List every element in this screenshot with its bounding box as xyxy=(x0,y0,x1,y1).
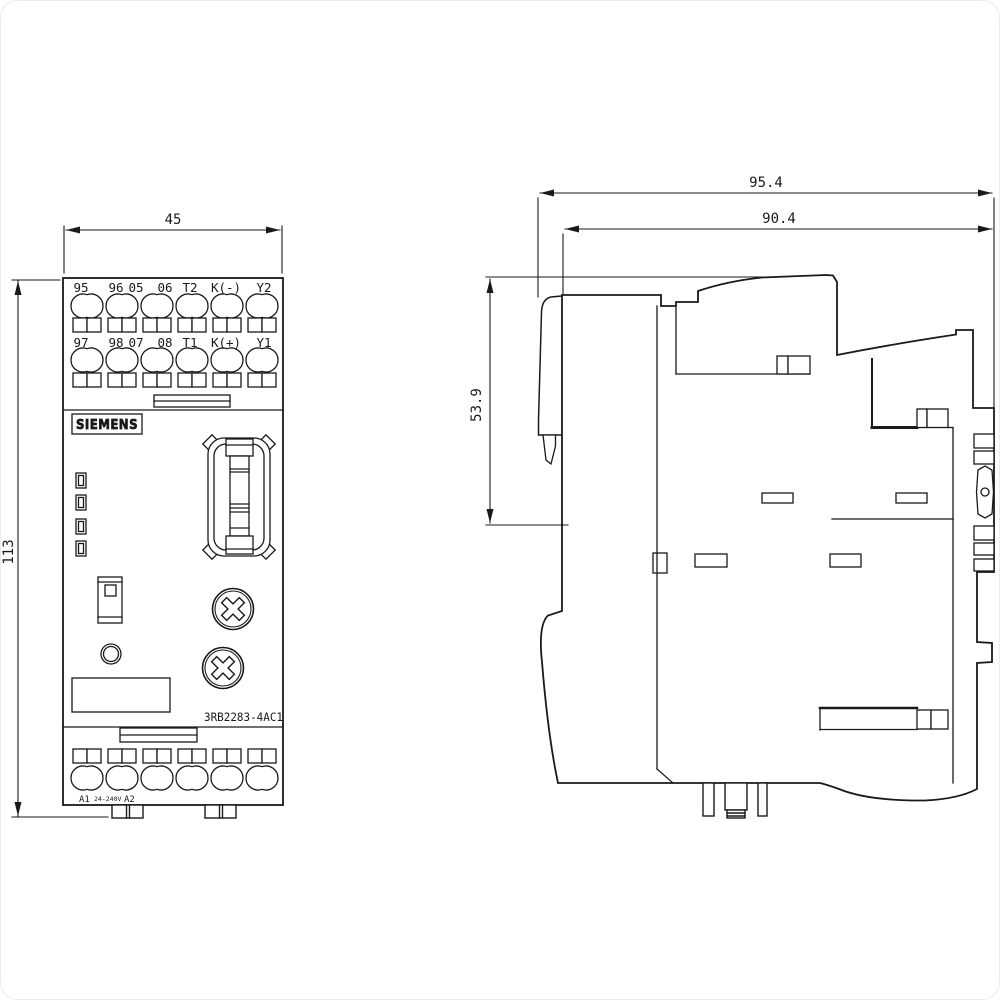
terminal-a1-label: A1 xyxy=(79,795,90,805)
terminal-label: 95 xyxy=(73,280,88,295)
terminal-label: Y1 xyxy=(256,335,271,350)
dimensional-drawing-page: 45 113 95.4 90.4 53.9 95 96 05 06 T2 K(-… xyxy=(0,0,1000,1000)
terminal-label: K(+) xyxy=(211,335,241,350)
reset-switch xyxy=(98,577,122,623)
terminal-label: T2 xyxy=(182,280,197,295)
mounting-feet xyxy=(112,805,236,818)
fixing-screw-upper xyxy=(213,589,254,630)
part-number: 3RB2283-4AC1 xyxy=(204,710,283,724)
terminal-label: Y2 xyxy=(256,280,271,295)
bus-connector xyxy=(203,435,275,559)
dimensional-drawing: 45 113 95.4 90.4 53.9 95 96 05 06 T2 K(-… xyxy=(0,0,1000,1000)
supply-voltage-label: 24-240V xyxy=(94,795,121,803)
front-view xyxy=(12,226,283,818)
fixing-screw-lower xyxy=(203,648,244,689)
terminal-label: 06 xyxy=(157,280,172,295)
terminal-label: 98 xyxy=(108,335,123,350)
side-front-face-details xyxy=(974,434,994,571)
dim-label-95-4: 95.4 xyxy=(749,175,783,191)
dimension-front-width xyxy=(64,226,282,273)
din-rail-clip xyxy=(539,296,563,464)
terminal-label: T1 xyxy=(182,335,197,350)
terminal-label: 96 xyxy=(108,280,123,295)
terminal-label: 97 xyxy=(73,335,88,350)
terminal-a2-label: A2 xyxy=(124,795,135,805)
terminal-label: K(-) xyxy=(211,280,241,295)
terminal-label: 05 xyxy=(128,280,143,295)
terminal-label: 07 xyxy=(128,335,143,350)
side-view xyxy=(486,190,994,819)
terminal-label: 08 xyxy=(157,335,172,350)
dim-label-53-9: 53.9 xyxy=(469,388,485,422)
dim-label-113: 113 xyxy=(1,539,17,564)
bottom-connector-pins xyxy=(703,783,767,818)
brand-logo-text: SIEMENS xyxy=(76,418,138,433)
dim-label-45: 45 xyxy=(165,212,182,228)
dim-label-90-4: 90.4 xyxy=(762,211,796,227)
